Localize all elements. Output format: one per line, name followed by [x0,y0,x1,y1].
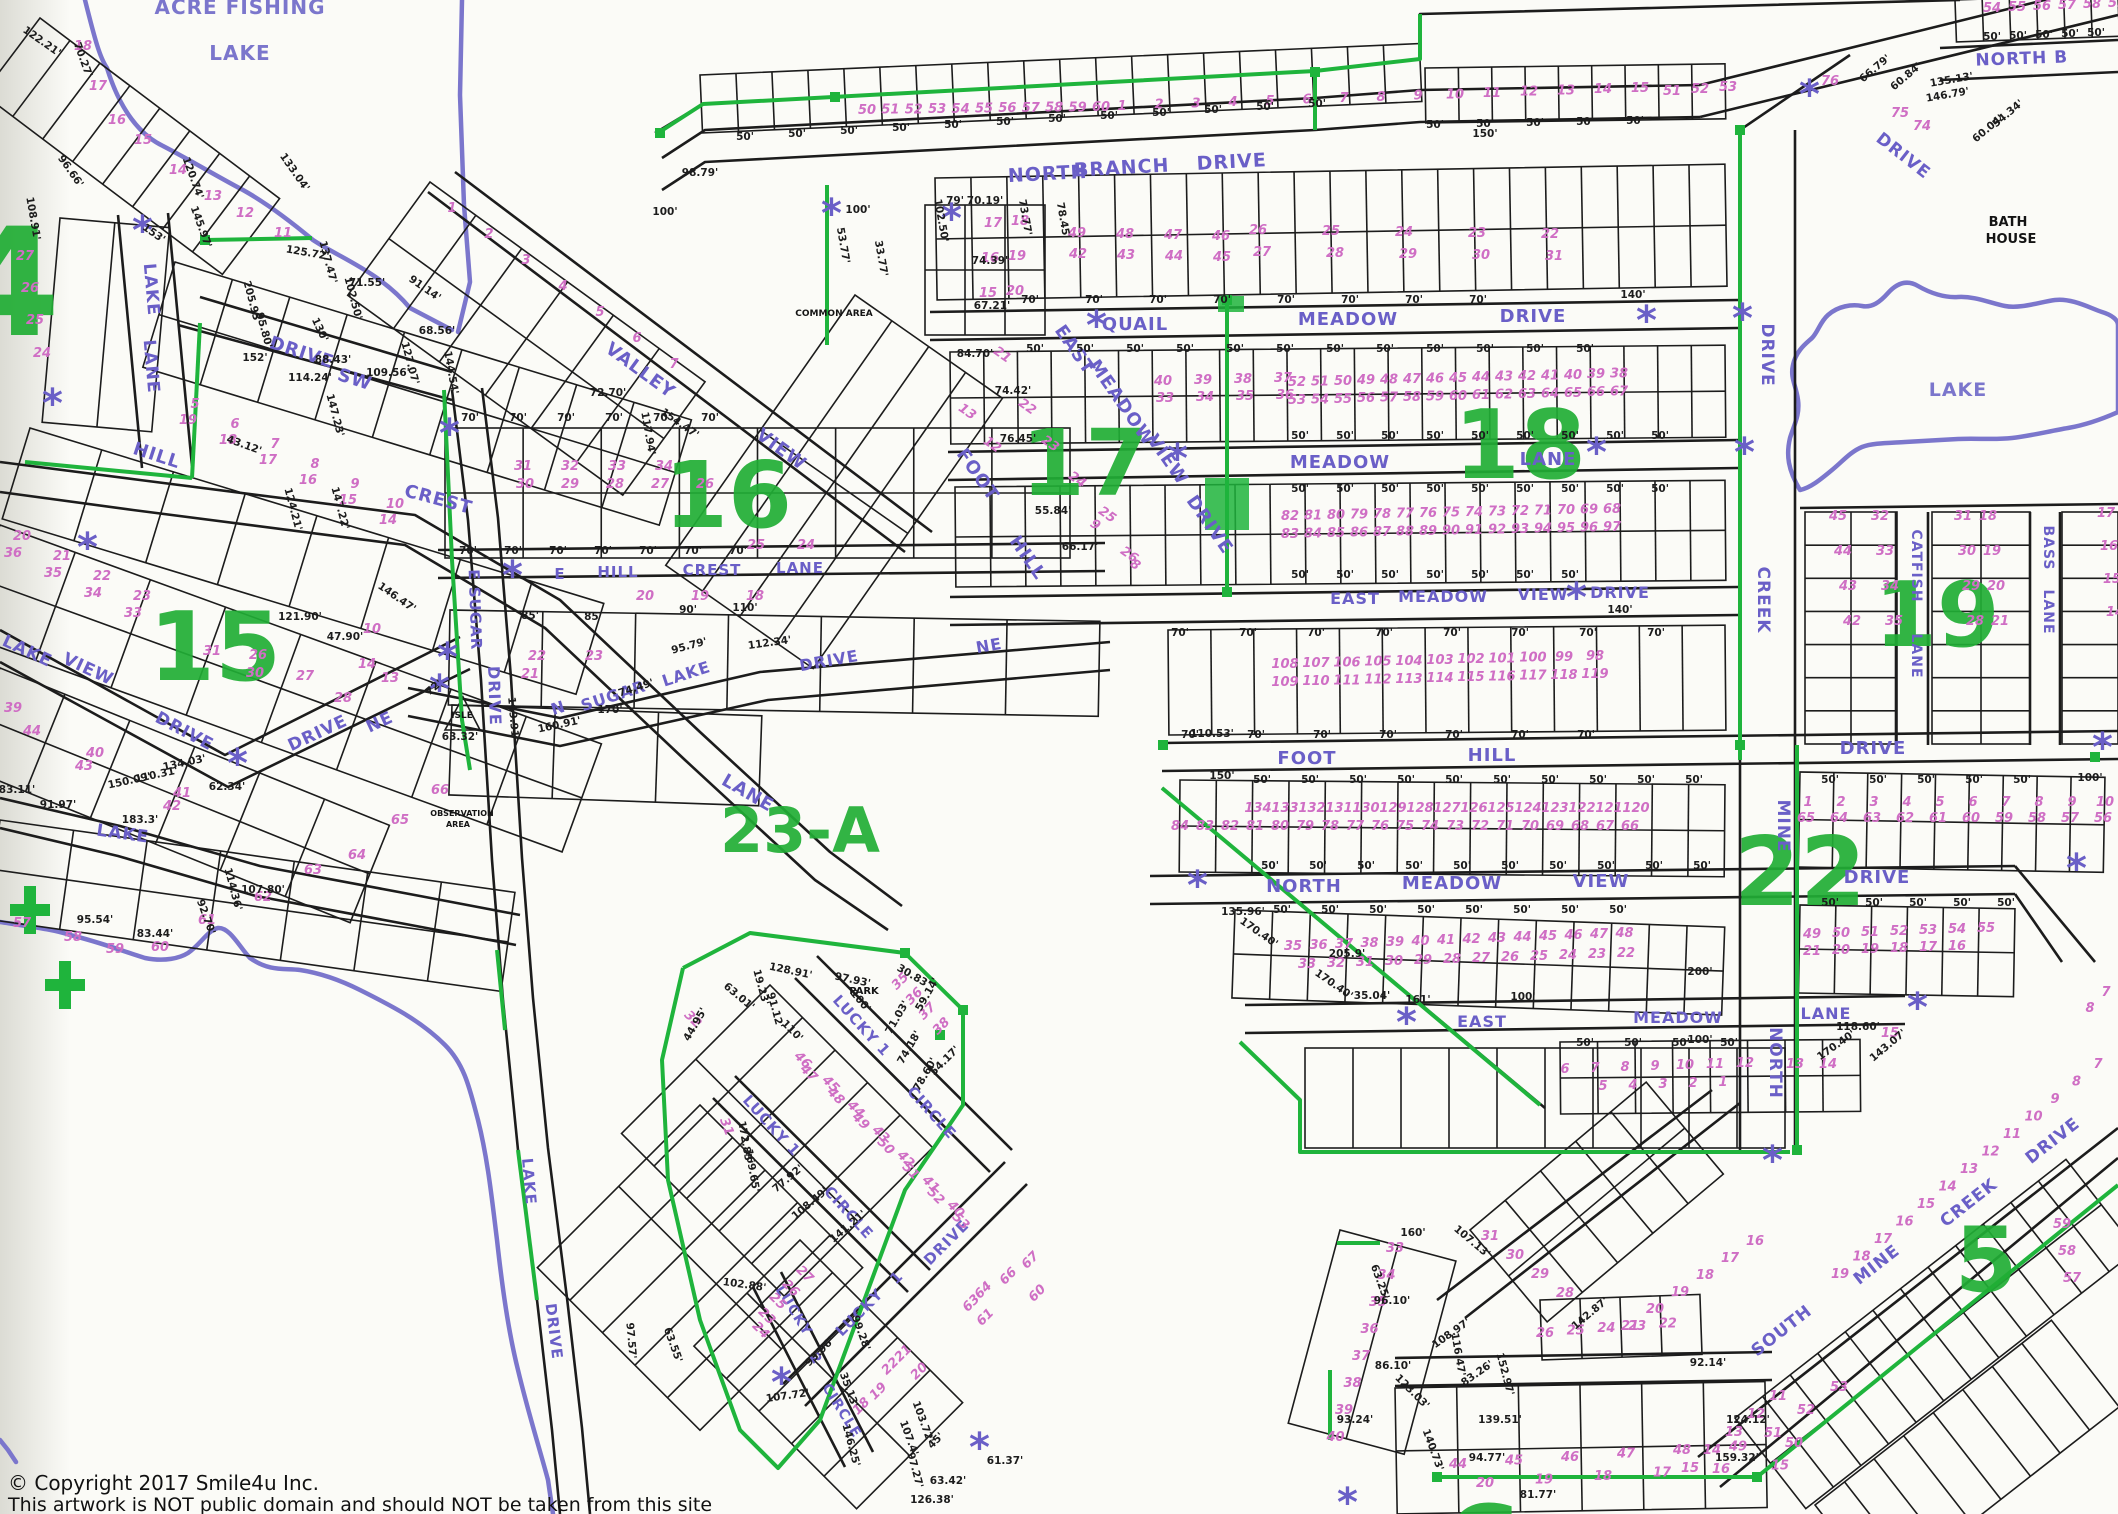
lot-number: 43 [1116,248,1135,263]
lot-number: 42 [1517,369,1536,384]
lot-number: 36 [1309,938,1327,953]
dimension-label: 35.04' [1354,990,1390,1002]
lot-number: 73 [1488,505,1506,520]
dimension-label: 50' [1256,101,1274,113]
lot-number: 46 [1211,229,1230,244]
street-label: E [554,565,565,583]
lot-number: 31 [1954,509,1972,524]
dimension-label: 161' [1405,994,1430,1006]
lot-number: 22 [1659,1316,1677,1331]
lot-number: 57 [1022,101,1041,116]
dimension-label: 70' [684,545,702,557]
dimension-label: 50' [1561,904,1579,916]
street-label: DRIVE [1757,323,1777,386]
copyright-line: © Copyright 2017 Smile4u Inc. [8,1471,319,1495]
asterisk-marker: * [1187,863,1209,909]
lot-number: 111 [1333,673,1360,688]
lot-number: 132 [1298,801,1325,816]
dimension-label: 159.32' [1715,1452,1759,1464]
lot-number: 15 [2103,572,2118,587]
lot-number: 57 [2061,811,2080,826]
lot-number: 4 [1901,795,1911,810]
lot-number: 66 [431,783,449,798]
lot-number: 44 [22,724,41,739]
lot-number: 27 [16,249,35,264]
area-label: ISLE [451,711,473,721]
street-label: DRIVE [1196,149,1267,175]
dimension-label: 50' [1291,430,1309,442]
dimension-label: 50' [1309,860,1327,872]
area-label: AREA [446,820,471,829]
lot-number: 71 [1496,819,1514,834]
dimension-label: 50' [1541,774,1559,786]
dimension-label: 70' [1511,627,1529,639]
dimension-label: 50' [1609,904,1627,916]
dimension-label: 50' [1426,483,1444,495]
parcel-line [1625,65,1626,120]
lot-number: 32 [1871,509,1889,524]
lot-number: 65 [1797,811,1815,826]
dimension-label: 50' [1465,904,1483,916]
dimension-label: 70' [1277,294,1295,306]
lot-number: 3 [1658,1077,1667,1092]
dimension-label: 50' [1276,343,1294,355]
lot-number: 19 [179,413,197,428]
lot-number: 46 [1425,371,1444,386]
lot-number: 16 [1712,1462,1730,1477]
lot-number: 134 [1244,801,1271,816]
lot-number: 17 [1919,940,1938,955]
dimension-label: 50' [1381,483,1399,495]
lot-number: 44 [1512,930,1531,945]
lot-number: 23 [585,649,603,664]
lot-number: 2 [1836,795,1845,810]
dimension-label: 70' [1375,627,1393,639]
boundary-corner-marker [958,1005,968,1015]
lot-number: 4 [557,279,567,294]
lot-number: 11 [274,226,292,241]
lot-number: 36 [4,546,22,561]
lot-number: 7 [2101,985,2111,1000]
street-label: LANE [776,559,824,577]
lot-number: 24 [33,346,51,361]
dimension-label: 50' [1526,343,1544,355]
lot-number: 26 [1501,950,1519,965]
asterisk-marker: * [1396,1000,1418,1046]
dimension-label: 92.14' [1690,1357,1726,1369]
lot-number: 50 [858,103,876,118]
dimension-label: 70' [1341,294,1359,306]
lot-number: 11 [1769,1389,1787,1404]
lot-number: 7 [2001,795,2011,810]
dimension-label: 140' [1607,604,1632,616]
lot-number: 6 [230,417,239,432]
lot-number: 3 [1869,795,1878,810]
lot-number: 10 [1446,87,1464,102]
dimension-label: 70' [1247,729,1265,741]
lot-number: 54 [1983,1,2001,16]
lot-number: 61 [1929,811,1947,826]
lot-number: 38 [1234,372,1252,387]
lot-number: 21 [1991,614,2009,629]
dimension-label: 74.39' [972,255,1008,267]
lot-number: 1 [1803,795,1812,810]
dimension-label: 50' [1516,430,1534,442]
dimension-label: 50' [2061,28,2079,40]
dimension-label: 88.43' [315,354,351,366]
dimension-label: 70' [1577,729,1595,741]
lot-number: 105 [1364,655,1391,670]
lot-number: 20 [13,529,31,544]
dimension-label: 114.24' [288,372,332,384]
dimension-label: 152' [242,352,267,364]
street-label: DRIVE [1590,583,1650,602]
dimension-label: 85' [584,611,602,623]
dimension-label: 79' [946,195,964,207]
lot-number: 6 [1968,795,1977,810]
lot-number: 52 [1890,924,1908,939]
lot-number: 23 [133,589,151,604]
lot-number: 85 [1327,526,1345,541]
dimension-label: 50' [1445,774,1463,786]
lot-number: 80 [1271,819,1289,834]
dimension-label: 205.9' [1329,948,1365,960]
lot-number: 47 [1589,927,1609,942]
lot-number: 121 [1595,801,1622,816]
dimension-label: 50' [1576,1037,1594,1049]
lot-number: 79 [1296,819,1314,834]
lot-number: 29 [1399,247,1417,262]
lot-number: 67 [1610,385,1629,400]
lot-number: 49 [1356,373,1375,388]
lot-number: 33 [608,459,626,474]
dimension-label: 50' [1597,860,1615,872]
boundary-corner-marker [1792,1145,1802,1155]
lot-number: 42 [162,799,181,814]
lot-number: 22 [93,569,111,584]
dimension-label: 68.56' [419,325,455,337]
lot-number: 63 [304,863,322,878]
dimension-label: 63.32' [442,731,478,743]
dimension-label: 50' [1501,860,1519,872]
dimension-label: 50' [1606,430,1624,442]
lot-number: 24 [1597,1321,1615,1336]
lot-number: 10 [363,622,381,637]
lot-number: 43 [1487,931,1506,946]
asterisk-marker: * [1337,1480,1359,1514]
lot-number: 19 [1861,942,1879,957]
lot-number: 97 [1603,520,1622,535]
lot-number: 72 [1471,819,1489,834]
lot-number: 52 [1797,1403,1815,1418]
dimension-label: 50' [1291,483,1309,495]
dimension-label: 50' [1369,904,1387,916]
lot-number: 57 [2063,1271,2082,1286]
lot-number: 77 [1346,819,1365,834]
lot-number: 56 [2094,811,2112,826]
lot-number: 119 [1581,667,1608,682]
lot-number: 78 [1373,507,1391,522]
lot-number: 118 [1550,668,1577,683]
dimension-label: 50' [1917,774,1935,786]
lot-number: 55 [975,102,993,117]
lot-number: 47 [1402,372,1422,387]
lot-number: 19 [1008,249,1026,264]
lot-number: 62 [1896,811,1914,826]
dimension-label: 50' [788,128,806,140]
lot-number: 53 [928,102,946,117]
lot-number: 51 [1663,84,1681,99]
lot-number: 68 [1603,502,1621,517]
lot-number: 17 [1874,1232,1893,1247]
lot-number: 58 [64,930,82,945]
lot-number: 13 [1725,1425,1743,1440]
dimension-label: 70' [557,412,575,424]
lot-number: 71 [1534,504,1552,519]
lot-number: 8 [1620,1060,1629,1075]
asterisk-marker: * [77,525,99,571]
lot-number: 33 [1298,957,1316,972]
dimension-label: 50' [1471,430,1489,442]
lot-number: 9 [2067,795,2076,810]
lot-number: 128 [1406,801,1433,816]
parcel-line [1211,630,1212,735]
lot-number: 11 [1483,86,1501,101]
lot-number: 18 [1890,941,1908,956]
dimension-label: 100' [652,206,677,218]
lot-number: 15 [1771,1459,1789,1474]
lot-number: 22 [528,649,546,664]
lot-number: 104 [1395,654,1422,669]
dimension-label: 83.44' [137,928,173,940]
street-label: DRIVE [1844,867,1911,888]
lot-number: 52 [905,102,923,117]
lot-number: 25 [747,538,765,553]
lot-number: 86 [1350,526,1368,541]
lot-number: 117 [1519,669,1547,684]
lot-number: 116 [1488,669,1515,684]
dimension-label: 50' [1376,343,1394,355]
lot-number: 45 [1828,509,1847,524]
dimension-label: 100' [2077,772,2102,784]
dimension-label: 70' [701,412,719,424]
lot-number: 1 [1718,1075,1727,1090]
boundary-corner-marker [1310,67,1320,77]
dimension-label: 50' [892,122,910,134]
lot-number: 26 [21,281,39,296]
lot-number: 45 [1212,250,1231,265]
lot-number: 33 [1386,1241,1404,1256]
lot-number: 51 [1861,925,1879,940]
lot-number: 51 [1311,374,1329,389]
dimension-label: 50' [1357,860,1375,872]
dimension-label: 70' [1443,627,1461,639]
dimension-label: 86.10' [1375,1360,1411,1372]
parcel-line [1639,626,1640,731]
dimension-label: 70' [1469,294,1487,306]
lot-number: 74 [1913,119,1931,134]
dimension-label: 50' [2035,29,2053,41]
dimension-label: 81.77' [1520,1489,1556,1501]
lot-number: 12 [236,206,254,221]
lot-number: 28 [1326,246,1344,261]
dimension-label: 91.97' [40,799,76,811]
dimension-label: 50' [1471,569,1489,581]
lot-number: 48 [1672,1443,1691,1458]
dimension-label: 55.84' [1035,505,1071,517]
lot-number: 46 [1560,1450,1579,1465]
green-cross-marker [45,979,85,991]
lot-number: 18 [1696,1268,1714,1283]
lot-number: 65 [391,813,409,828]
dimension-label: 183.3' [122,814,158,826]
lot-number: 1 [447,201,456,216]
lot-number: 60 [151,940,169,955]
dimension-label: 70.19' [967,195,1003,207]
lot-number: 11 [1706,1057,1724,1072]
lot-number: 63 [1863,811,1881,826]
dimension-label: 50' [1516,569,1534,581]
dimension-label: 50' [1821,897,1839,909]
dimension-label: 50' [736,131,754,143]
dimension-label: 70' [504,545,522,557]
dimension-label: 50' [1624,1037,1642,1049]
parcel-line [1658,65,1659,120]
lot-number: 5 [1935,795,1944,810]
lot-number: 9 [1413,89,1422,104]
asterisk-marker: * [502,553,524,599]
lot-number: 88 [1396,525,1414,540]
water-label: LAKE [1929,379,1988,401]
dimension-label: 50' [1336,430,1354,442]
lot-number: 29 [1531,1267,1549,1282]
dimension-label: 50' [1405,860,1423,872]
dimension-label: 100' [1687,1034,1712,1046]
dimension-label: 98.79' [682,167,718,179]
dimension-label: 70' [1085,294,1103,306]
lot-number: 60 [1962,811,1980,826]
dimension-label: 100' [845,204,870,216]
lot-number: 73 [1446,819,1464,834]
lot-number: 33 [124,606,142,621]
lot-number: 1 [1117,99,1126,114]
dimension-label: 50' [1526,117,1544,129]
lot-number: 26 [696,477,714,492]
lot-number: 84 [1171,819,1189,834]
street-label: MEADOW [1298,309,1398,330]
lot-number: 127 [1433,801,1461,816]
dimension-label: 70' [605,412,623,424]
lot-number: 10 [2096,795,2114,810]
lot-number: 51 [1764,1426,1782,1441]
lot-number: 30 [1385,954,1403,969]
lot-number: 78 [1321,819,1339,834]
boundary-corner-marker [1158,740,1168,750]
lot-number: 131 [1325,801,1352,816]
lot-number: 58 [1403,390,1421,405]
lot-number: 56 [1357,391,1375,406]
area-label: COMMON AREA [795,309,873,319]
lot-number: 59 [1069,100,1087,115]
dimension-label: 50' [1349,774,1367,786]
lot-number: 126 [1460,801,1487,816]
dimension-label: 50' [1651,430,1669,442]
dimension-label: 139.51' [1478,1414,1522,1426]
dimension-label: 50' [1997,897,2015,909]
lot-number: 66 [1587,385,1605,400]
lot-number: 34 [1196,390,1214,405]
dimension-label: 67.21' [974,300,1010,312]
lot-number: 102 [1457,652,1484,667]
lot-number: 10 [386,497,404,512]
boundary-corner-marker [1432,1472,1442,1482]
lot-number: 34 [1881,579,1899,594]
street-label: MEADOW [1290,452,1390,473]
lot-number: 123 [1541,801,1568,816]
lot-number: 62 [1495,388,1513,403]
lot-number: 94 [1534,522,1552,537]
lot-number: 95 [1557,521,1575,536]
lot-number: 35 [1885,614,1903,629]
lot-number: 14 [358,657,376,672]
asterisk-marker: * [1762,1138,1784,1184]
lot-number: 39 [4,701,22,716]
dimension-label: 50' [1381,430,1399,442]
lot-number: 109 [1271,675,1298,690]
lot-number: 64 [1830,811,1848,826]
street-label: DRIVE [1500,306,1567,327]
lot-number: 23 [1628,1319,1646,1334]
street-label: MEADOW [1633,1008,1723,1027]
lot-number: 39 [1587,367,1605,382]
dimension-label: 50' [1493,774,1511,786]
asterisk-marker: * [1907,985,1929,1031]
dimension-label: 90' [679,604,697,616]
lot-number: 61 [1472,388,1490,403]
lot-number: 8 [2034,795,2043,810]
dimension-label: 160' [1400,1227,1425,1239]
lot-number: 59 [2108,0,2118,11]
dimension-label: 150' [1209,770,1234,782]
lot-number: 24 [1395,225,1413,240]
dimension-label: 170' [597,704,622,716]
lot-number: 35 [1284,939,1302,954]
lot-number: 56 [2033,0,2051,14]
parcel-line [1254,629,1255,734]
lot-number: 35 [44,566,62,581]
dimension-label: 50' [1589,774,1607,786]
lot-number: 12 [1736,1056,1754,1071]
street-label: LANE [2040,589,2056,634]
lot-number: 4 [1227,95,1237,110]
lot-number: 44 [1833,544,1852,559]
lot-number: 39 [1386,935,1404,950]
lot-number: 83 [1196,819,1214,834]
lot-number: 8 [2072,1075,2081,1090]
lot-number: 28 [1966,614,1984,629]
lot-number: 19 [1671,1285,1689,1300]
lot-number: 31 [1545,249,1563,264]
dimension-label: 50' [1685,774,1703,786]
dimension-label: 50' [1865,897,1883,909]
dimension-label: 70' [1313,729,1331,741]
street-label: E SUGAR [465,569,486,651]
lot-number: 54 [1948,922,1966,937]
lot-number: 2 [1688,1076,1697,1091]
water-label: LAKE [209,41,270,65]
lot-number: 44 [1164,249,1183,264]
dimension-label: 50' [1513,904,1531,916]
